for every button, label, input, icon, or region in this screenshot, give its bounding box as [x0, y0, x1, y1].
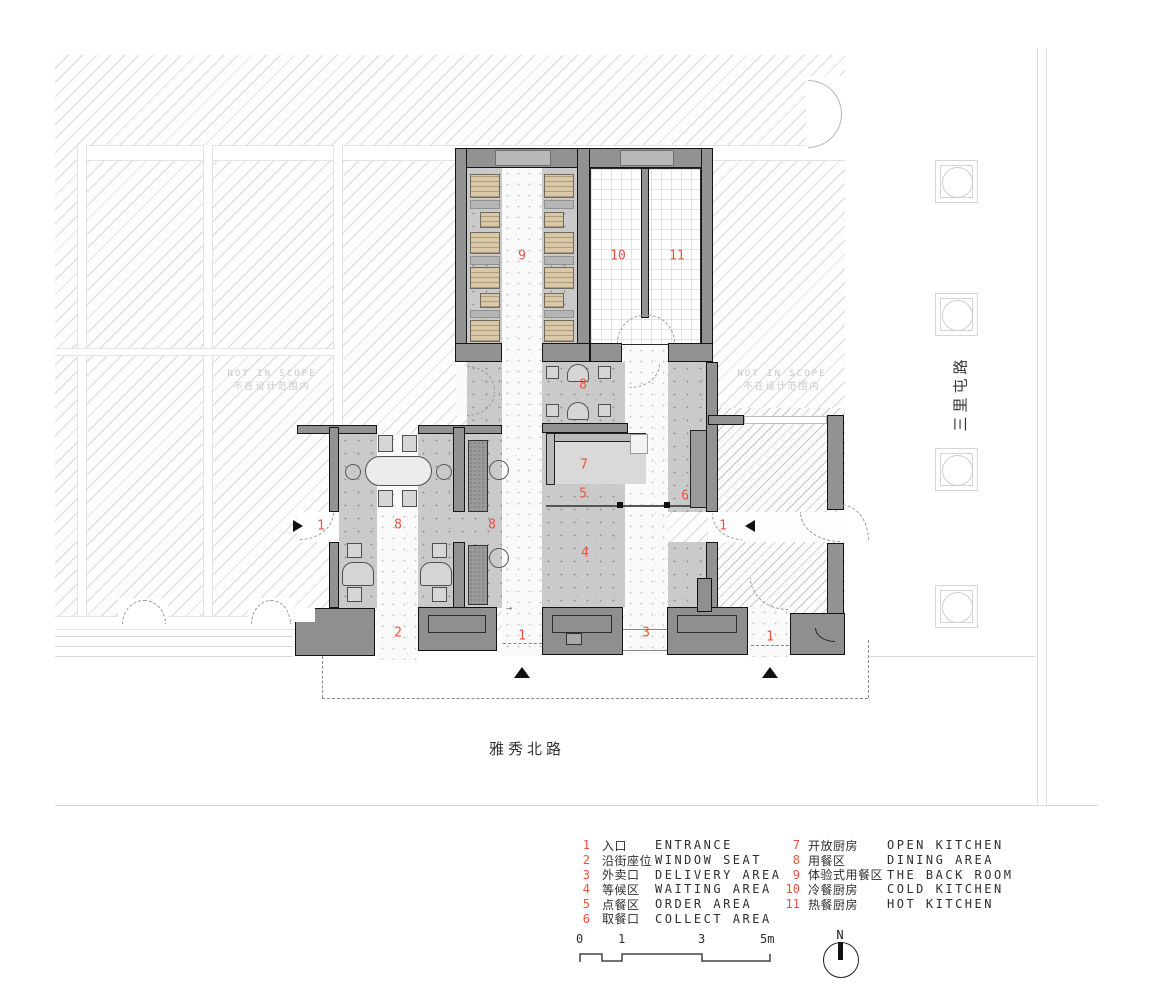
tree-icon [942, 592, 973, 623]
sidewalk-line [55, 656, 293, 657]
entry-arrow-icon [514, 667, 530, 678]
legend-number: 6 [570, 912, 590, 926]
stool [598, 366, 611, 379]
scale-bar-graphic [572, 948, 792, 970]
wood-table [470, 232, 500, 254]
door-opening [456, 366, 466, 416]
chair [378, 490, 393, 507]
wall [542, 343, 590, 362]
wood-table [470, 267, 500, 289]
legend-number: 8 [778, 853, 800, 867]
legend-number: 2 [570, 853, 590, 867]
wall [590, 343, 622, 362]
bench [470, 310, 500, 318]
counter-post [664, 502, 670, 508]
north-label: N [820, 928, 860, 942]
round-stool [345, 464, 361, 480]
legend-label-en: ENTRANCE [655, 838, 733, 852]
scale-tick-label: 0 [576, 932, 583, 946]
road-curb-line [1037, 48, 1038, 805]
counter-post [617, 502, 623, 508]
legend-label-en: OPEN KITCHEN [887, 838, 1004, 852]
wall [708, 415, 744, 425]
plan-marker-8: 8 [394, 519, 402, 532]
tree-planter [935, 448, 978, 491]
wall [827, 415, 844, 510]
wall-niche [744, 416, 827, 424]
scope-boundary [322, 698, 868, 699]
scope-boundary [322, 656, 323, 698]
main-aisle-east [625, 345, 667, 655]
stool [598, 404, 611, 417]
not-in-scope-zh: 不在设计范围内 [192, 381, 352, 394]
plan-marker-7: 7 [580, 459, 588, 472]
legend-number: 1 [570, 838, 590, 852]
round-stool [436, 464, 452, 480]
stool [546, 366, 559, 379]
sidewalk-line [55, 636, 293, 637]
chair [402, 435, 417, 452]
plan-marker-1: 1 [766, 631, 774, 644]
wall [706, 362, 718, 512]
wood-table [544, 267, 574, 289]
kitchen-pass-block [630, 434, 648, 454]
legend-row-11: 11热餐厨房HOT KITCHEN [778, 897, 1013, 912]
legend-label-en: HOT KITCHEN [887, 897, 994, 911]
wall [577, 148, 590, 362]
dining-table [365, 456, 432, 486]
sidewalk-line [868, 656, 1035, 657]
wood-table [470, 174, 500, 198]
legend-row-1: 1入口ENTRANCE [570, 838, 781, 853]
wood-side-table [544, 212, 564, 228]
wall [453, 427, 465, 512]
bench [544, 256, 574, 265]
street-label-right: 三里屯路 [950, 349, 971, 439]
plan-marker-5: 5 [579, 488, 587, 501]
scope-boundary [868, 640, 869, 698]
wall-niche [495, 150, 551, 166]
counter-inset [428, 615, 486, 633]
legend-row-4: 4等候区WAITING AREA [570, 882, 781, 897]
wood-table [470, 320, 500, 342]
wall [455, 343, 502, 362]
separator-line [55, 805, 1098, 806]
wall [701, 148, 713, 362]
order-counter-line [546, 505, 702, 507]
wall [55, 348, 335, 356]
legend-label-en: ORDER AREA [655, 897, 752, 911]
bench [470, 200, 500, 209]
legend-row-8: 8用餐区DINING AREA [778, 853, 1013, 868]
chair [432, 587, 447, 602]
legend-number: 9 [778, 868, 800, 882]
wood-table [544, 320, 574, 342]
legend-number: 4 [570, 882, 590, 896]
bench [470, 256, 500, 265]
main-aisle-west [502, 168, 542, 656]
plan-marker-1: 1 [518, 630, 526, 643]
tree-planter [935, 585, 978, 628]
legend-number: 5 [570, 897, 590, 911]
chair [432, 543, 447, 558]
not-in-scope-note-right: NOT IN SCOPE 不在设计范围内 [702, 368, 862, 394]
legend-label-zh: 取餐口 [602, 910, 655, 927]
plan-marker-11: 11 [669, 250, 685, 263]
north-arrow: N [820, 928, 860, 984]
plan-marker-10: 10 [610, 250, 626, 263]
legend-label-zh: 热餐厨房 [808, 896, 887, 913]
scale-tick-label: 3 [698, 932, 705, 946]
shelf-partition [468, 440, 488, 512]
bench [544, 200, 574, 209]
wood-side-table [480, 293, 500, 308]
wall [453, 542, 465, 608]
counter-inset [552, 615, 612, 633]
compass-circle [823, 942, 859, 978]
plan-marker-4: 4 [581, 547, 589, 560]
plan-marker-1: 1 [719, 520, 727, 533]
sidewalk-line [55, 646, 293, 647]
kitchen-counter [546, 433, 555, 485]
wall [329, 542, 339, 608]
scale-tick-label: 5m [760, 932, 774, 946]
legend-row-9: 9体验式用餐区THE BACK ROOM [778, 867, 1013, 882]
legend-label-en: COLD KITCHEN [887, 882, 1004, 896]
wood-side-table [480, 212, 500, 228]
plan-marker-1: 1 [317, 520, 325, 533]
floor-plan-canvas: NOT IN SCOPE 不在设计范围内 NOT IN SCOPE 不在设计范围… [0, 0, 1149, 1000]
legend-number: 3 [570, 868, 590, 882]
wall [77, 145, 87, 620]
wall [542, 423, 628, 433]
legend-column-1: 1入口ENTRANCE2沿街座位WINDOW SEAT3外卖口DELIVERY … [570, 838, 781, 926]
counter-inset [677, 615, 737, 633]
not-in-scope-en: NOT IN SCOPE [192, 368, 352, 381]
bench [544, 310, 574, 318]
plan-marker-6: 6 [681, 490, 689, 503]
tree-icon [942, 167, 973, 198]
legend-number: 7 [778, 838, 800, 852]
scale-tick-label: 1 [618, 932, 625, 946]
plan-marker-8: 8 [488, 519, 496, 532]
legend-row-3: 3外卖口DELIVERY AREA [570, 867, 781, 882]
street-label-bottom: 雅秀北路 [462, 738, 592, 759]
compass-needle [838, 942, 843, 960]
entry-arrow-east-icon [293, 520, 303, 532]
chair [402, 490, 417, 507]
booth-table [342, 562, 374, 586]
wall [329, 427, 339, 512]
legend-label-en: WINDOW SEAT [655, 853, 762, 867]
shelf-partition [468, 545, 488, 605]
legend-row-7: 7开放厨房OPEN KITCHEN [778, 838, 1013, 853]
scale-bar: 0 1 3 5m [572, 932, 792, 978]
delivery-window-line [623, 650, 667, 651]
legend-row-2: 2沿街座位WINDOW SEAT [570, 853, 781, 868]
street-counter [697, 578, 712, 612]
chair [378, 435, 393, 452]
threshold-line [751, 645, 789, 646]
wood-side-table [544, 293, 564, 308]
legend-label-en: THE BACK ROOM [887, 868, 1013, 882]
plan-marker-2: 2 [394, 627, 402, 640]
plan-marker-9: 9 [518, 250, 526, 263]
wood-table [544, 174, 574, 198]
legend-label-en: DINING AREA [887, 853, 994, 867]
plan-marker-3: 3 [642, 627, 650, 640]
entry-arrow-west-icon [745, 520, 755, 532]
legend-number: 11 [778, 897, 800, 911]
wall [641, 168, 649, 318]
tree-planter [935, 160, 978, 203]
entry-arrow-icon [762, 667, 778, 678]
tree-icon [942, 300, 973, 331]
legend-number: 10 [778, 882, 800, 896]
chair [347, 587, 362, 602]
round-table [489, 548, 509, 568]
legend-label-en: COLLECT AREA [655, 912, 772, 926]
wall [455, 148, 467, 362]
booth-table [420, 562, 452, 586]
wood-table [544, 232, 574, 254]
round-table [567, 402, 589, 420]
chair [347, 543, 362, 558]
plan-marker-8: 8 [579, 379, 587, 392]
not-in-scope-zh: 不在设计范围内 [702, 381, 862, 394]
tree-icon [942, 455, 973, 486]
flow-arrow: → [506, 603, 512, 614]
legend-label-en: DELIVERY AREA [655, 868, 781, 882]
stool [546, 404, 559, 417]
wall-niche [620, 150, 674, 166]
round-table [489, 460, 509, 480]
legend-column-2: 7开放厨房OPEN KITCHEN8用餐区DINING AREA9体验式用餐区T… [778, 838, 1013, 911]
not-in-scope-note-left: NOT IN SCOPE 不在设计范围内 [192, 368, 352, 394]
tree-planter [935, 293, 978, 336]
not-in-scope-en: NOT IN SCOPE [702, 368, 862, 381]
wall [827, 543, 844, 617]
wall [668, 343, 713, 362]
legend-row-6: 6取餐口COLLECT AREA [570, 911, 781, 926]
legend-row-10: 10冷餐厨房COLD KITCHEN [778, 882, 1013, 897]
legend-label-en: WAITING AREA [655, 882, 772, 896]
counter-notch [295, 608, 315, 622]
legend-row-5: 5点餐区ORDER AREA [570, 897, 781, 912]
counter-notch [566, 633, 582, 645]
road-curb-line [1046, 48, 1047, 805]
